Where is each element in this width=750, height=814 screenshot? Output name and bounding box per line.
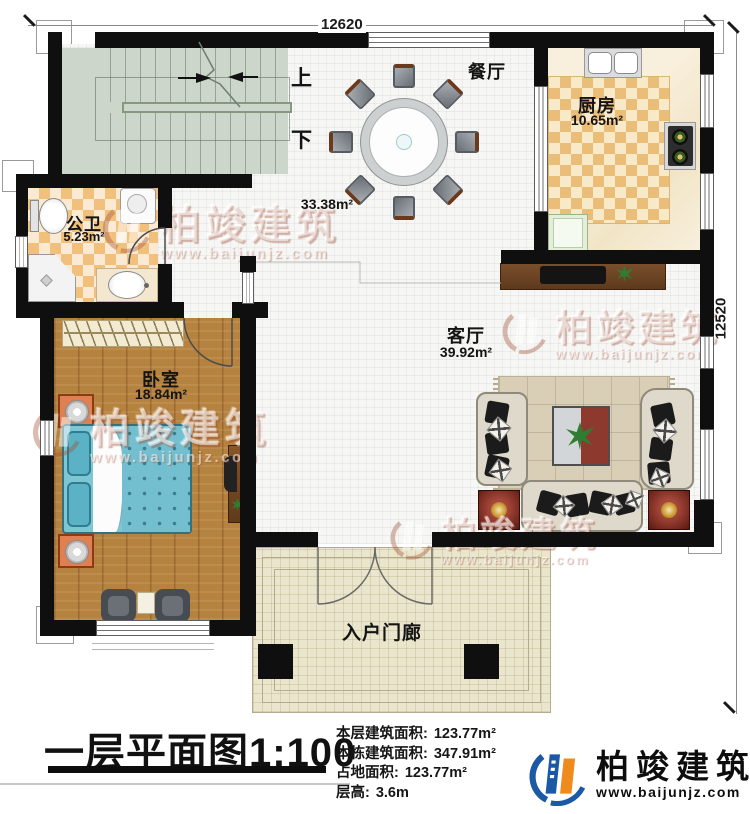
stat-row: 层高:3.6m (336, 784, 496, 804)
stair-arrow (228, 72, 243, 82)
living-room-area: 39.92m² (426, 344, 506, 360)
stat-label: 本栋建筑面积: (336, 746, 428, 762)
porch-label: 入户门廊 (312, 618, 452, 645)
brand-logo-icon (526, 744, 588, 806)
title-underline (48, 766, 326, 773)
top-dimension-label: 12620 (318, 16, 366, 33)
bedroom-door-arc (184, 318, 232, 366)
stair-break-line (199, 42, 240, 107)
right-dimension-line (736, 30, 737, 714)
top-dimension-line (28, 25, 712, 26)
stat-value: 123.77m² (434, 726, 496, 742)
stat-label: 占地面积: (336, 765, 399, 781)
stat-label: 本层建筑面积: (336, 726, 428, 742)
stat-value: 347.91m² (434, 746, 496, 762)
stat-row: 本层建筑面积:123.77m² (336, 725, 496, 745)
entry-door-arc-right (375, 547, 432, 604)
floor-plan-page: { "plan": { "dimensions": { "top": "1262… (0, 0, 750, 814)
door-arcs-overlay (0, 0, 750, 814)
stat-value: 3.6m (376, 785, 409, 801)
ceiling-step-line (256, 262, 501, 283)
right-dimension-label: 12520 (712, 295, 729, 343)
brand-url: www.baijunjz.com (596, 784, 750, 800)
dining-room-label: 餐厅 (447, 58, 527, 84)
bathroom-door-arc (129, 228, 165, 264)
stat-value: 123.77m² (405, 765, 467, 781)
bedroom-area: 18.84m² (121, 386, 201, 402)
stat-row: 占地面积:123.77m² (336, 764, 496, 784)
stair-up-label: 上 (284, 62, 320, 92)
stair-down-label: 下 (284, 124, 320, 154)
plan-stats: 本层建筑面积:123.77m² 本栋建筑面积:347.91m² 占地面积:123… (336, 725, 496, 803)
dining-room-area: 33.38m² (287, 196, 367, 212)
brand-logo: 柏竣建筑 www.baijunjz.com (526, 744, 750, 806)
kitchen-area: 10.65m² (557, 112, 637, 128)
entry-door-arc-left (318, 547, 375, 604)
bathroom-area: 5.23m² (44, 229, 124, 244)
stat-label: 层高: (336, 785, 370, 801)
brand-name: 柏竣建筑 (596, 750, 750, 784)
stat-row: 本栋建筑面积:347.91m² (336, 745, 496, 765)
title-thin-line (0, 783, 350, 785)
